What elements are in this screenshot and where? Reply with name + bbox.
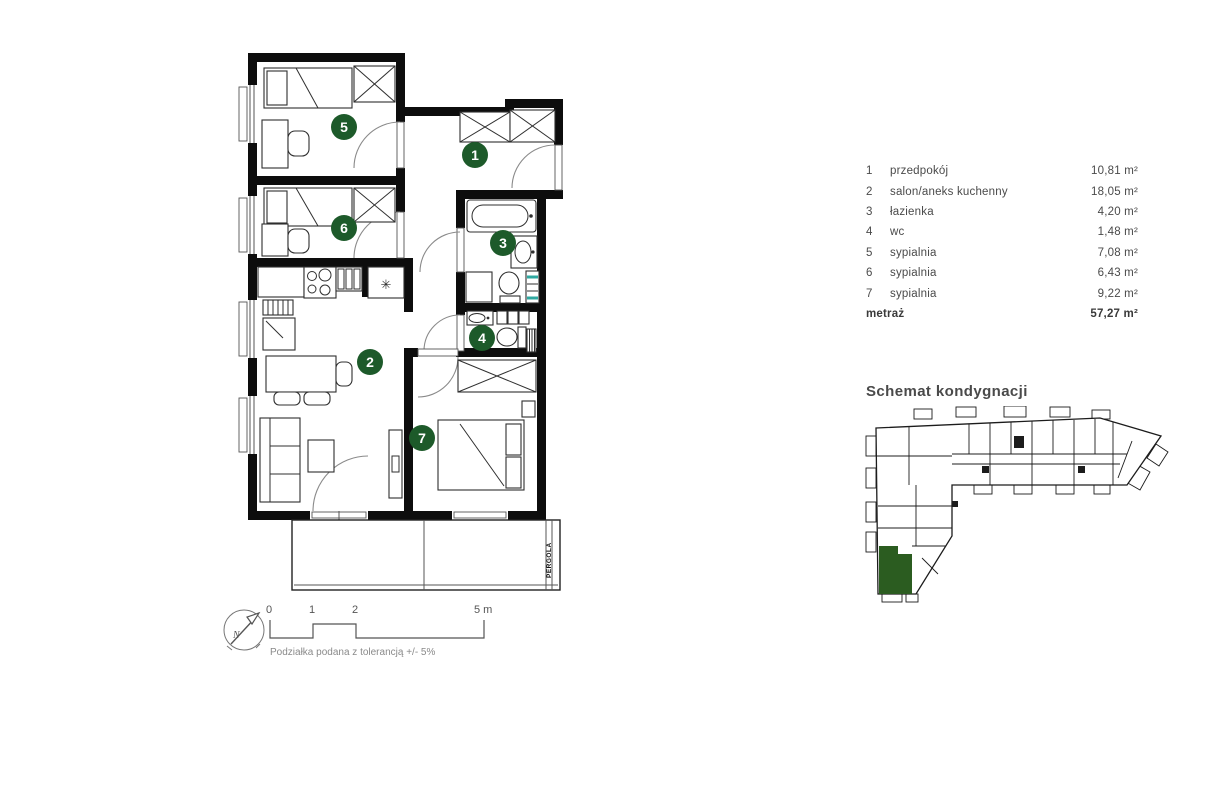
chair-icon — [304, 392, 330, 405]
scale-note: Podziałka podana z tolerancją +/- 5% — [270, 647, 435, 658]
legend-room-area: 7,08 m² — [1098, 247, 1138, 259]
svg-text:2: 2 — [366, 354, 374, 370]
legend-total-row: metraż 57,27 m² — [866, 304, 1138, 324]
scale-tick-2: 2 — [352, 604, 358, 616]
compass: N — [224, 610, 264, 650]
legend-room-area: 9,22 m² — [1098, 288, 1138, 300]
furniture-room5 — [262, 66, 395, 168]
room-badge-4: 4 — [469, 325, 495, 351]
cabinet-icon — [466, 272, 492, 302]
fridge-icon: ✳ — [368, 267, 404, 298]
side-table-icon — [263, 318, 295, 350]
room-badge-5: 5 — [331, 114, 357, 140]
terrace: PERGOLA — [292, 520, 560, 590]
window-living — [239, 396, 258, 454]
chair-icon — [288, 229, 309, 253]
legend-row: 7 sypialnia 9,22 m² — [866, 283, 1138, 303]
legend-row: 2 salon/aneks kuchenny 18,05 m² — [866, 181, 1138, 201]
legend-row: 3 łazienka 4,20 m² — [866, 202, 1138, 222]
legend-room-number: 1 — [866, 165, 890, 177]
shelf-icon — [519, 311, 529, 324]
chair-icon — [288, 131, 309, 156]
door-room5 — [354, 122, 404, 168]
door-entrance — [512, 145, 562, 190]
legend-room-name: przedpokój — [890, 165, 948, 177]
handbasin-icon — [467, 311, 493, 325]
pillow-icon — [267, 71, 287, 105]
nightstand-icon — [522, 401, 535, 417]
furniture-room7 — [438, 360, 536, 490]
svg-text:4: 4 — [478, 330, 486, 346]
legend-row: 6 sypialnia 6,43 m² — [866, 263, 1138, 283]
legend-room-area: 4,20 m² — [1098, 206, 1138, 218]
north-label: N — [232, 630, 241, 641]
legend-row: 1 przedpokój 10,81 m² — [866, 161, 1138, 181]
pergola-label: PERGOLA — [546, 542, 553, 578]
scale-tick-5: 5 m — [474, 604, 492, 616]
desk-icon — [262, 224, 288, 256]
legend-room-area: 18,05 m² — [1091, 186, 1138, 198]
legend-room-number: 7 — [866, 288, 890, 300]
door-balcony-room7 — [454, 512, 506, 518]
double-bed-icon — [438, 420, 524, 490]
scale-tick-0: 0 — [266, 604, 272, 616]
legend-room-number: 3 — [866, 206, 890, 218]
window-room6 — [239, 196, 258, 254]
radiator-icon — [526, 271, 539, 303]
svg-text:1: 1 — [471, 147, 479, 163]
wardrobe-icon — [354, 66, 395, 102]
legend-room-area: 1,48 m² — [1098, 226, 1138, 238]
door-room7 — [418, 349, 458, 397]
furniture-living-kitchen: ✳ — [258, 267, 404, 502]
furniture-room6 — [262, 188, 395, 256]
tv-cabinet-icon — [389, 430, 402, 498]
legend-room-number: 5 — [866, 247, 890, 259]
svg-text:6: 6 — [340, 220, 348, 236]
legend-room-number: 2 — [866, 186, 890, 198]
room-badge-2: 2 — [357, 349, 383, 375]
legend-room-name: sypialnia — [890, 247, 937, 259]
wardrobe-icon — [460, 112, 510, 142]
svg-text:5: 5 — [340, 119, 348, 135]
legend-row: 4 wc 1,48 m² — [866, 222, 1138, 242]
wardrobe-icon — [354, 188, 395, 222]
legend-room-number: 6 — [866, 267, 890, 279]
room-badge-1: 1 — [462, 142, 488, 168]
floor-schematic — [864, 406, 1170, 606]
legend-room-name: łazienka — [890, 206, 934, 218]
legend-room-name: wc — [890, 226, 904, 238]
svg-text:7: 7 — [418, 430, 426, 446]
legend-total-area: 57,27 m² — [1090, 308, 1138, 320]
sofa-icon — [260, 418, 300, 502]
legend-room-area: 6,43 m² — [1098, 267, 1138, 279]
scale-bar: 0 1 2 5 m Podziałka podana z tolerancją … — [266, 604, 492, 658]
room-badge-3: 3 — [490, 230, 516, 256]
coffee-table-icon — [308, 440, 334, 472]
legend-room-area: 10,81 m² — [1091, 165, 1138, 177]
furniture-hall — [460, 110, 555, 142]
scale-tick-1: 1 — [309, 604, 315, 616]
sink-unit-icon — [336, 267, 362, 291]
svg-text:3: 3 — [499, 235, 507, 251]
window-room5 — [239, 85, 258, 143]
bathtub-icon — [467, 200, 536, 232]
counter-icon — [258, 267, 304, 297]
apartment-floor-plan: ✳ — [0, 0, 640, 700]
dining-table-icon — [266, 356, 336, 392]
room-badge-6: 6 — [331, 215, 357, 241]
pillow-icon — [267, 191, 287, 223]
shelf-icon — [508, 311, 518, 324]
legend-room-name: sypialnia — [890, 267, 937, 279]
shelf-icon — [497, 311, 507, 324]
desk-icon — [262, 120, 288, 168]
schematic-title: Schemat kondygnacji — [866, 383, 1028, 400]
room-legend: 1 przedpokój 10,81 m² 2 salon/aneks kuch… — [866, 161, 1138, 324]
radiator-icon — [263, 300, 293, 315]
door-bathroom — [420, 228, 464, 272]
window-kitchen — [239, 300, 258, 358]
legend-row: 5 sypialnia 7,08 m² — [866, 243, 1138, 263]
chair-icon — [274, 392, 300, 405]
legend-room-name: salon/aneks kuchenny — [890, 186, 1008, 198]
legend-room-name: sypialnia — [890, 288, 937, 300]
chair-icon — [336, 362, 352, 386]
radiator-icon — [527, 329, 536, 352]
legend-room-number: 4 — [866, 226, 890, 238]
wardrobe-icon — [510, 110, 555, 142]
legend-total-label: metraż — [866, 308, 904, 320]
north-arrow-icon — [247, 613, 259, 624]
wardrobe-icon — [458, 360, 536, 392]
room-badge-7: 7 — [409, 425, 435, 451]
door-wc — [424, 315, 464, 351]
floor-plan-page: ✳ — [0, 0, 1222, 797]
toilet-icon — [499, 272, 520, 303]
fridge-symbol: ✳ — [381, 277, 392, 292]
toilet-icon — [497, 327, 526, 348]
stove-icon — [304, 267, 336, 298]
